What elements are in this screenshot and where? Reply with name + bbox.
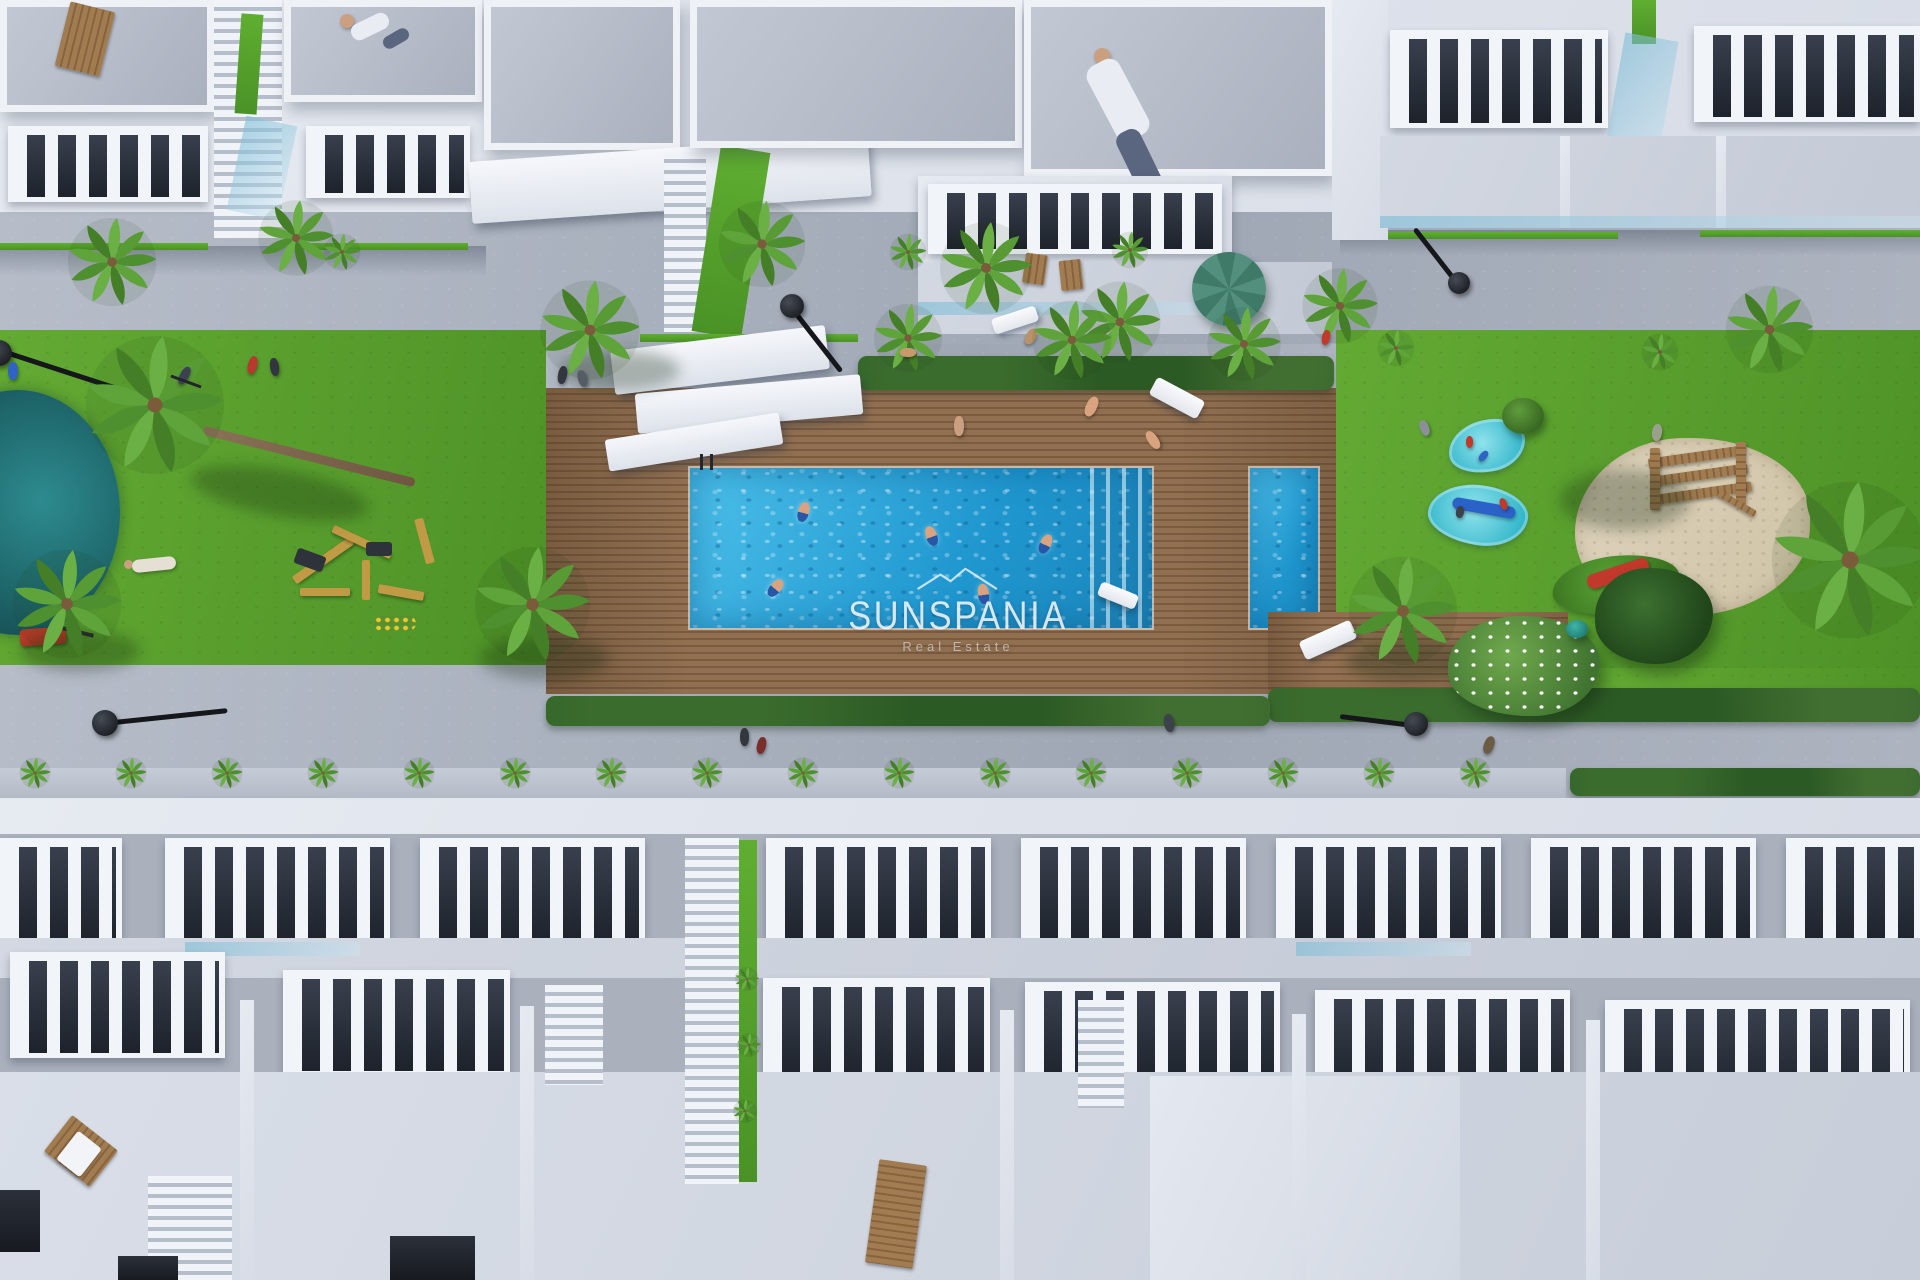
planter-plant <box>786 756 820 790</box>
palm-tree <box>1299 265 1381 347</box>
terrace-railing <box>420 838 645 948</box>
street-lamp <box>1404 712 1428 736</box>
palm-tree <box>470 542 595 667</box>
palm-tree <box>64 214 160 310</box>
planter-plant <box>1362 756 1396 790</box>
balcony-railing <box>1694 26 1920 122</box>
small-bush <box>1566 620 1588 638</box>
terrace-railing <box>1531 838 1756 948</box>
pool-ladder <box>700 454 703 470</box>
terrace-partition <box>520 1006 534 1280</box>
staircase-plant <box>736 1032 762 1058</box>
terrace-partition <box>1586 1020 1600 1280</box>
palm-tree <box>1722 282 1817 377</box>
shadow-patch <box>118 1256 178 1280</box>
staircase-grass-strip <box>739 840 757 1182</box>
terrace-partition <box>1000 1010 1014 1280</box>
planter-plant <box>1266 756 1300 790</box>
street-lamp <box>92 710 118 736</box>
person-walking <box>954 416 964 436</box>
accent-plant <box>1640 332 1680 372</box>
palm-tree <box>715 197 809 291</box>
terrace-railing <box>1021 838 1246 948</box>
terrace-railing <box>283 970 510 1076</box>
planter-plant <box>978 756 1012 790</box>
palm-tree <box>871 301 945 375</box>
accent-plant <box>1376 328 1416 368</box>
roof-terrace-large <box>1024 0 1332 176</box>
pool-ladder <box>710 454 713 470</box>
accent-plant <box>1110 230 1150 270</box>
planter-plant <box>402 756 436 790</box>
terrace-railing <box>10 952 225 1058</box>
townhouse-back-wall <box>0 798 1920 834</box>
staircase <box>545 985 603 1085</box>
terrace-railing <box>1276 838 1501 948</box>
palm-tree <box>936 218 1036 318</box>
palm-tree <box>8 545 126 663</box>
street-lamp <box>1448 272 1470 294</box>
central-staircase <box>685 838 739 1184</box>
planter-hedge <box>1570 768 1920 796</box>
glass-balustrade <box>1380 216 1920 228</box>
palm-tree <box>536 276 644 384</box>
street-lamp <box>780 294 804 318</box>
terrace-railing <box>165 838 390 948</box>
hedge-row <box>546 696 1270 726</box>
accent-plant <box>322 232 362 272</box>
round-bush <box>1502 398 1544 434</box>
palm-tree-large <box>1765 475 1920 645</box>
person-walking <box>8 362 18 380</box>
planter-plant <box>690 756 724 790</box>
flower-patch <box>374 616 416 631</box>
glass-balustrade <box>1296 942 1471 956</box>
planter-plant <box>1170 756 1204 790</box>
planter-strip <box>1700 230 1920 237</box>
person-sitting <box>900 348 916 357</box>
roof-terrace <box>484 0 680 150</box>
accent-plant <box>888 232 928 272</box>
planter-plant <box>594 756 628 790</box>
planter-plant <box>498 756 532 790</box>
gym-equipment-post <box>362 560 370 600</box>
terrace-partition <box>1292 1014 1306 1280</box>
palm-tree <box>1029 297 1115 383</box>
planter-plant <box>882 756 916 790</box>
staircase <box>1078 1000 1124 1108</box>
planter-plant <box>1074 756 1108 790</box>
tree-shadow <box>1560 470 1690 530</box>
main-swimming-pool <box>690 468 1152 628</box>
palm-tree-crown <box>80 330 230 480</box>
rooftop-floor <box>0 1072 1920 1280</box>
staircase-plant <box>732 1098 758 1124</box>
balcony-railing <box>306 126 470 198</box>
planter-plant <box>210 756 244 790</box>
terrace-railing <box>763 978 990 1084</box>
person-walking <box>740 728 749 746</box>
planter-plant <box>18 756 52 790</box>
planter-plant <box>306 756 340 790</box>
balcony-railing <box>8 126 208 202</box>
gym-mat <box>366 542 392 556</box>
aerial-render-scene: SUNSPANIA Real Estate <box>0 0 1920 1280</box>
palm-tree <box>1204 304 1284 384</box>
terrace-railing <box>1786 838 1920 948</box>
staircase-plant <box>734 966 760 992</box>
terrace-divider <box>1716 136 1726 228</box>
palm-tree <box>1344 552 1462 670</box>
climbing-frame-post <box>1736 442 1746 504</box>
terrace-railing <box>766 838 991 948</box>
terrace-divider <box>1560 136 1570 228</box>
terrace-railing <box>0 838 122 948</box>
children-pool <box>1250 468 1318 628</box>
planter-plant <box>114 756 148 790</box>
balcony-railing <box>1390 30 1608 128</box>
child-on-splash-pad <box>1466 436 1473 448</box>
shadow-patch <box>390 1236 475 1280</box>
planter-plant <box>1458 756 1492 790</box>
dark-tree <box>1595 568 1713 664</box>
shadow-patch <box>0 1190 40 1252</box>
roof-terrace <box>690 0 1022 148</box>
terrace-floor <box>1380 136 1920 228</box>
terrace-partition <box>240 1000 254 1280</box>
gym-equipment-bar <box>300 588 350 596</box>
